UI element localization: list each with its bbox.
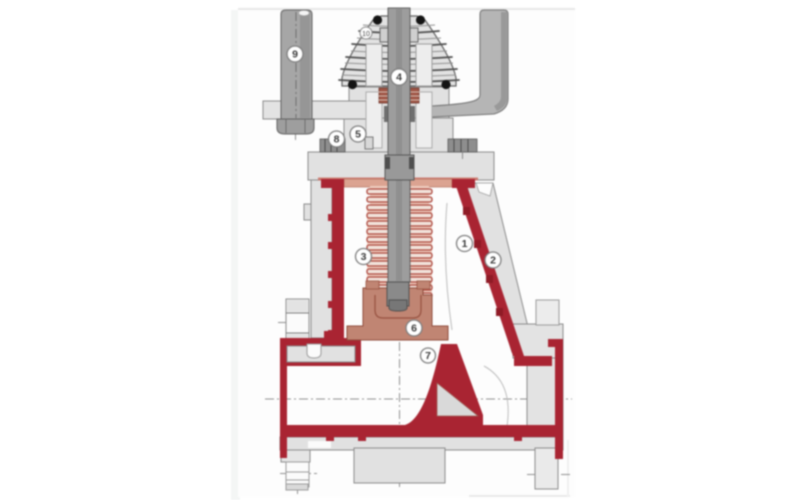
svg-text:6: 6 xyxy=(411,323,417,335)
svg-text:10: 10 xyxy=(362,31,370,38)
svg-text:9: 9 xyxy=(292,49,298,61)
svg-text:7: 7 xyxy=(425,350,431,362)
svg-text:1: 1 xyxy=(462,238,468,250)
svg-text:3: 3 xyxy=(361,251,367,263)
svg-text:4: 4 xyxy=(396,72,402,84)
svg-text:5: 5 xyxy=(355,129,361,141)
svg-text:8: 8 xyxy=(334,134,340,146)
svg-text:2: 2 xyxy=(490,255,496,267)
